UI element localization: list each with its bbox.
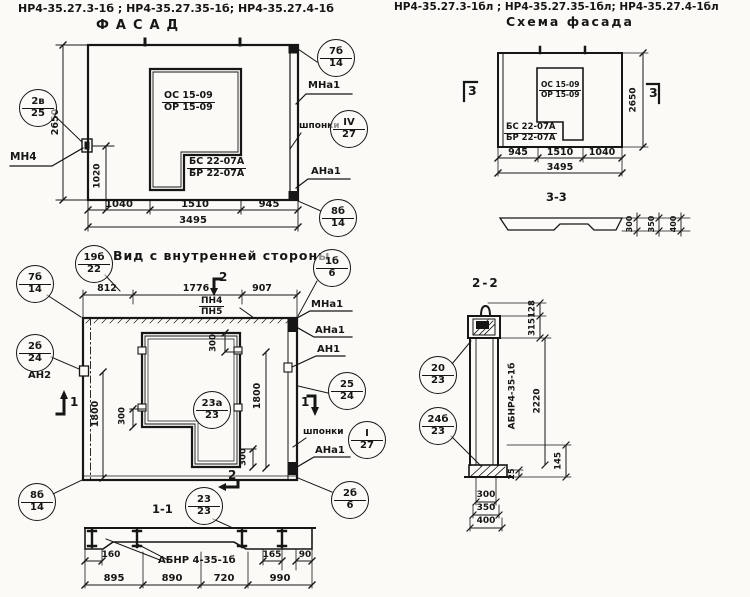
section-marker-2-top: 2 [219, 271, 227, 284]
dim-1510: 1510 [181, 200, 209, 211]
dim-945-schema: 945 [508, 148, 528, 158]
dim-300-s33: 300 [626, 216, 634, 233]
anchor-label-ana1b: АНа1 [315, 446, 345, 457]
anchor-label-mn4: МН4 [10, 152, 37, 163]
dim-300-bottom: 300 [240, 448, 249, 466]
dim-907: 907 [252, 284, 272, 294]
anchor-label-ana1-inner: АНа1 [315, 326, 345, 337]
callout-23a-23: 23а 23 [193, 391, 231, 429]
section-marker-1-right: 1 [301, 396, 309, 409]
facade-door-mark: БС 22-07А БР 22-07А [187, 157, 246, 180]
dim-schema-height: 2650 [629, 87, 638, 112]
callout-sheet: 23 [431, 376, 445, 387]
dim-890: 890 [162, 574, 183, 585]
callout-25-24: 25 24 [328, 372, 366, 410]
dim-315: 315 [529, 318, 538, 336]
dim-1776: 1776 [183, 284, 209, 294]
callout-sheet: 14 [28, 285, 42, 296]
callout-8b-14-inner: 8б 14 [18, 483, 56, 521]
callout-24b-23: 24б 23 [419, 407, 457, 445]
dim-3495: 3495 [179, 216, 207, 227]
callout-sheet: 25 [31, 109, 45, 120]
callout-2b-24: 2б 24 [16, 334, 54, 372]
dim-2220: 2220 [533, 388, 542, 413]
dim-165: 165 [263, 551, 282, 560]
drawing-sheet: НР4-35.27.3-1б ; НР4-35.27.35-1б; НР4-35… [0, 0, 750, 597]
anchor-label-an2: АН2 [28, 371, 51, 382]
codes-left: НР4-35.27.3-1б ; НР4-35.27.35-1б; НР4-35… [18, 3, 334, 15]
dim-945: 945 [259, 200, 280, 211]
dim-1040-schema: 1040 [589, 148, 615, 158]
callout-19b-22: 19б 22 [75, 245, 113, 283]
callout-sheet: 27 [342, 130, 356, 141]
callout-detail: 2б [19, 342, 51, 354]
dim-3495-schema: 3495 [547, 163, 573, 173]
dim-1040: 1040 [105, 200, 133, 211]
section-1-1-title: 1-1 [152, 503, 173, 515]
callout-sheet: 24 [340, 392, 354, 403]
callout-detail: 2б [334, 489, 366, 501]
callout-7b-14-inner: 7б 14 [16, 265, 54, 303]
section-3-3-title: 3-3 [546, 191, 567, 203]
schema-door-bottom: БР 22-07А [504, 134, 557, 144]
callout-1b-6: 1б 6 [313, 249, 351, 287]
callout-sheet: 22 [87, 265, 101, 276]
dim-25: 25 [508, 468, 516, 479]
callout-detail: 23а [196, 399, 228, 411]
anchor-label-mna1-inner: МНа1 [311, 300, 343, 311]
callout-detail: 2в [22, 97, 54, 109]
panel-mark-abnr-vertical: АБНР4-35-1б [508, 363, 517, 430]
schema-view [464, 47, 690, 236]
pn-top-mark: ПН4 [199, 296, 224, 307]
callout-detail: 7б [320, 47, 352, 59]
callout-detail: 25 [331, 380, 363, 392]
callout-detail: 8б [21, 491, 53, 503]
callout-23-23: 23 23 [185, 487, 223, 525]
panel-mark-abnr: АБНР 4-35-1б [158, 556, 236, 567]
door-bottom-mark: БР 22-07А [187, 169, 246, 180]
dim-300-top: 300 [210, 334, 219, 352]
callout-detail: I [351, 429, 383, 441]
schema-window-bottom: ОР 15-09 [539, 91, 581, 100]
callout-sheet: 14 [30, 503, 44, 514]
anchor-label-an1: АН1 [317, 345, 340, 356]
callout-8b-14-facade: 8б 14 [319, 199, 357, 237]
dim-300-s22: 300 [477, 491, 496, 500]
callout-sheet: 14 [331, 219, 345, 230]
facade-window-mark: ОС 15-09 ОР 15-09 [162, 91, 215, 114]
callout-detail: 20 [422, 364, 454, 376]
section-marker-1-left: 1 [70, 396, 78, 409]
dim-895: 895 [104, 574, 125, 585]
callout-20-23: 20 23 [419, 356, 457, 394]
dim-720: 720 [214, 574, 235, 585]
schema-window-mark: ОС 15-09 ОР 15-09 [539, 81, 581, 99]
callout-detail: 8б [322, 207, 354, 219]
dim-1800-right: 1800 [253, 383, 263, 409]
callout-sheet: 23 [197, 507, 211, 518]
dim-160: 160 [102, 551, 121, 560]
dim-90: 90 [299, 551, 312, 560]
dim-128: 128 [529, 300, 538, 318]
facade-title: ФАСАД [96, 19, 185, 33]
schema-title: Схема фасада [506, 15, 634, 28]
dim-990: 990 [270, 574, 291, 585]
callout-sheet: 14 [329, 59, 343, 70]
pn-bottom-mark: ПН5 [199, 307, 224, 317]
callout-detail: 24б [422, 415, 454, 427]
callout-detail: 19б [78, 253, 110, 265]
dim-1510-schema: 1510 [547, 148, 573, 158]
callout-2v-25: 2в 25 [19, 89, 57, 127]
shponki-label-inner: шпонки [303, 428, 344, 437]
callout-detail: IV [333, 118, 365, 130]
schema-door-mark: БС 22-07А БР 22-07А [504, 123, 557, 144]
callout-detail: 7б [19, 273, 51, 285]
callout-sheet: 24 [28, 354, 42, 365]
dim-812: 812 [97, 284, 117, 294]
window-bottom-mark: ОР 15-09 [162, 103, 215, 114]
callout-7b-14-facade: 7б 14 [317, 39, 355, 77]
callout-2b-6: 2б 6 [331, 481, 369, 519]
callout-sheet: 27 [360, 441, 374, 452]
callout-sheet: 23 [431, 427, 445, 438]
callout-sheet: 6 [329, 269, 336, 280]
callout-i-27: I 27 [348, 421, 386, 459]
dim-400-s33: 400 [670, 216, 678, 233]
section-marker-2-bottom: 2 [228, 469, 236, 482]
callout-detail: 23 [188, 495, 220, 507]
dim-145: 145 [555, 452, 564, 470]
callout-sheet: 23 [205, 411, 219, 422]
callout-sheet: 6 [347, 501, 354, 512]
anchor-label-ana1: АНа1 [311, 167, 341, 178]
dim-1020: 1020 [93, 163, 102, 188]
dim-350-s22: 350 [477, 504, 496, 513]
section-2-2-title: 2-2 [472, 277, 500, 290]
dim-300-left: 300 [119, 407, 128, 425]
inner-view-title: Вид с внутренней стороны [113, 249, 330, 262]
callout-iv-27: IV 27 [330, 110, 368, 148]
anchor-label-mna1: МНа1 [308, 81, 340, 92]
section-marker-3-right: 3 [649, 86, 658, 99]
dim-400-s22: 400 [477, 517, 496, 526]
dim-1800-left: 1800 [91, 401, 101, 427]
codes-right: НР4-35.27.3-1бл ; НР4-35.27.35-1бл; НР4-… [394, 2, 719, 13]
dim-350-s33: 350 [648, 216, 656, 233]
pn-mark: ПН4 ПН5 [199, 296, 224, 318]
callout-detail: 1б [316, 257, 348, 269]
section-marker-3-left: 3 [468, 84, 477, 97]
